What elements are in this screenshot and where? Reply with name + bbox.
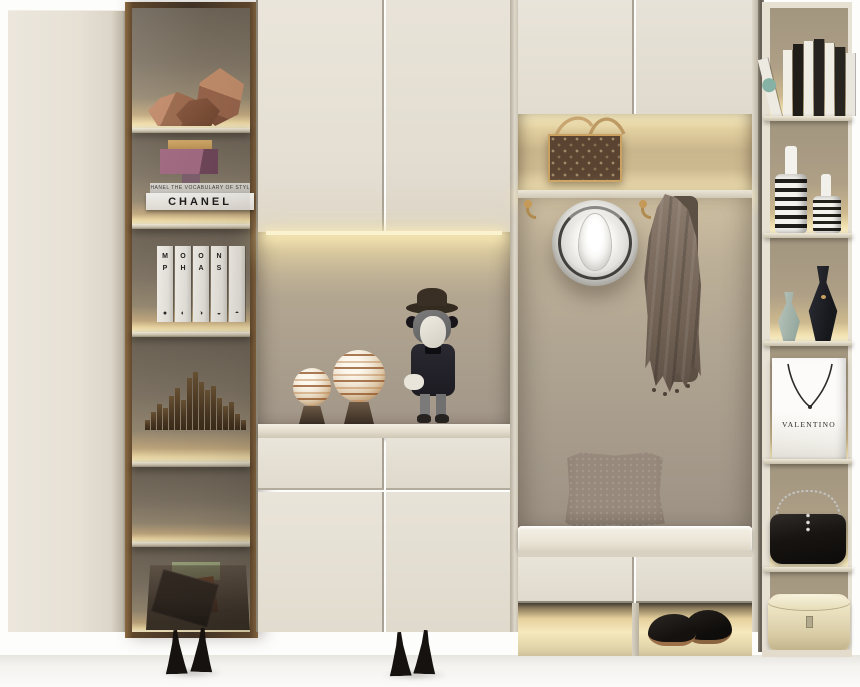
art-books-row: [772, 34, 846, 116]
moon-book-spine: OH◐: [175, 246, 191, 322]
shelf-board: [764, 459, 852, 464]
moon-phase-books: MP●OH◐OA◑NS◒◓: [157, 246, 247, 324]
scarf-fringe: [675, 389, 679, 393]
bench-cushion: [518, 526, 752, 550]
skyline-bar: [151, 412, 156, 430]
skyline-bar: [187, 378, 192, 430]
acrylic-storage-basket: [146, 558, 250, 630]
entry-upper-door-right: [636, 0, 752, 114]
shelf-board: [764, 341, 852, 346]
book-spine: [846, 53, 855, 116]
middle-lower-door-right: [386, 492, 510, 632]
bronze-skyline-sculpture: [145, 368, 255, 430]
middle-upper-door-right: [386, 0, 510, 232]
cubby-divider: [632, 603, 639, 656]
shelf-board: [764, 567, 852, 572]
figure-shoe: [435, 414, 449, 423]
skyline-bar: [205, 390, 210, 430]
moon-phase-icon: ◑: [193, 310, 209, 317]
spine-letter: N: [211, 253, 227, 260]
figure-hat-crown: [417, 288, 447, 306]
skyline-bar: [163, 408, 168, 430]
hat-box-clasp: [806, 616, 813, 628]
skyline-bar: [175, 388, 180, 430]
heel-shoe: [164, 630, 188, 675]
gold-block-sculpture: [168, 140, 212, 149]
striped-vase-short: [821, 174, 831, 198]
bag-clasp: [802, 532, 814, 548]
moon-book-spine: OA◑: [193, 246, 209, 322]
skyline-bar: [181, 400, 186, 430]
moon-phase-icon: ◓: [229, 310, 245, 317]
moon-phase-icon: ◐: [175, 310, 191, 317]
striped-vase-short: [813, 196, 841, 233]
heel-shoe: [388, 632, 412, 677]
bench-drawer-right: [636, 557, 752, 603]
figure-leg: [420, 394, 430, 416]
scarf-fringe: [652, 388, 656, 392]
moon-book-spine: ◓: [229, 246, 245, 322]
heel-shoe: [413, 630, 437, 675]
skyline-bar: [169, 396, 174, 430]
skyline-bar: [157, 404, 162, 430]
striped-vase-tall: [785, 146, 797, 176]
middle-upper-door-left: [258, 0, 384, 232]
skyline-bar: [193, 372, 198, 430]
valentino-logo-text: VALENTINO: [772, 420, 846, 429]
heel-shoe: [190, 628, 214, 673]
entry-shelf-board: [518, 190, 752, 198]
skyline-bar: [145, 420, 150, 430]
striped-orb-large: [333, 350, 385, 402]
moon-phase-icon: ◒: [211, 310, 227, 317]
bench-board: [518, 550, 752, 557]
bench-drawer-left: [518, 557, 634, 603]
scarf-fringe: [663, 392, 667, 396]
hat-crown: [579, 214, 611, 270]
entryway-wardrobe-scene: CHANEL THE VOCABULARY OF STYLE CHANEL MP…: [0, 0, 860, 687]
striped-orb-small: [293, 368, 331, 406]
round-hat-box: [768, 594, 850, 650]
tower-shelf-board: [132, 332, 250, 337]
skyline-bar: [241, 420, 246, 430]
bag-studs: [805, 512, 811, 532]
middle-drawer-left: [258, 438, 384, 490]
tower-shelf-board: [132, 128, 250, 133]
chanel-book-spine-large: CHANEL: [146, 193, 254, 210]
niche-countertop: [258, 424, 510, 438]
moon-book-spine: NS◒: [211, 246, 227, 322]
entry-upper-door-left: [518, 0, 634, 114]
skyline-bar: [199, 382, 204, 430]
tower-shelf-board: [132, 462, 250, 467]
derby-shoe: [648, 614, 696, 646]
sculpture-base: [182, 174, 200, 183]
book-spine: [783, 50, 792, 116]
collectible-figure: [398, 286, 468, 426]
black-heels-pair: [165, 628, 215, 674]
tower-shelf-empty: [132, 467, 250, 542]
spine-letter: M: [157, 253, 173, 260]
spine-letter: S: [211, 265, 227, 272]
scarf-fringe: [686, 384, 690, 388]
black-heels-pair: [389, 630, 439, 676]
skyline-bar: [211, 386, 216, 430]
fedora-hat: [552, 200, 638, 286]
figure-glove-hand: [404, 374, 424, 390]
tower-shelf-board: [132, 542, 250, 547]
figure-leg: [436, 394, 446, 416]
shelf-board: [764, 116, 852, 121]
middle-drawer-right: [386, 438, 510, 490]
spine-letter: P: [157, 265, 173, 272]
shopping-bag-handles: [772, 362, 846, 412]
book-spine: [793, 44, 803, 116]
left-cabinet-door: [8, 10, 125, 632]
moon-phase-icon: ●: [157, 310, 173, 317]
skyline-bar: [217, 398, 222, 430]
niche-led-strip: [266, 231, 502, 235]
unit-base-board: [762, 650, 852, 657]
shelf-board: [764, 233, 852, 238]
mauve-block-sculpture: [160, 149, 218, 174]
skyline-bar: [235, 414, 240, 430]
spine-letter: O: [193, 253, 209, 260]
valentino-shopping-bag: VALENTINO: [772, 358, 846, 459]
book-spine: [835, 47, 845, 116]
tower-shelf-board: [132, 224, 250, 229]
spine-letter: A: [193, 265, 209, 272]
chanel-book-spine-small: CHANEL THE VOCABULARY OF STYLE: [150, 183, 250, 193]
moon-book-spine: MP●: [157, 246, 173, 322]
spine-letter: H: [175, 265, 191, 272]
throw-pillow: [562, 450, 668, 530]
skyline-bar: [229, 402, 234, 430]
middle-lower-door-left: [258, 492, 384, 632]
figure-shoe: [417, 414, 431, 423]
striped-vase-tall: [775, 174, 807, 233]
skyline-bar: [223, 406, 228, 430]
book-spine: [825, 43, 834, 116]
studded-chain-bag: [770, 514, 846, 564]
entry-side-panel: [510, 0, 518, 632]
spine-letter: O: [175, 253, 191, 260]
figure-glove-face: [420, 316, 446, 348]
book-spine: [814, 39, 824, 116]
monogram-handbag: [548, 134, 622, 182]
book-spine: [804, 41, 813, 116]
